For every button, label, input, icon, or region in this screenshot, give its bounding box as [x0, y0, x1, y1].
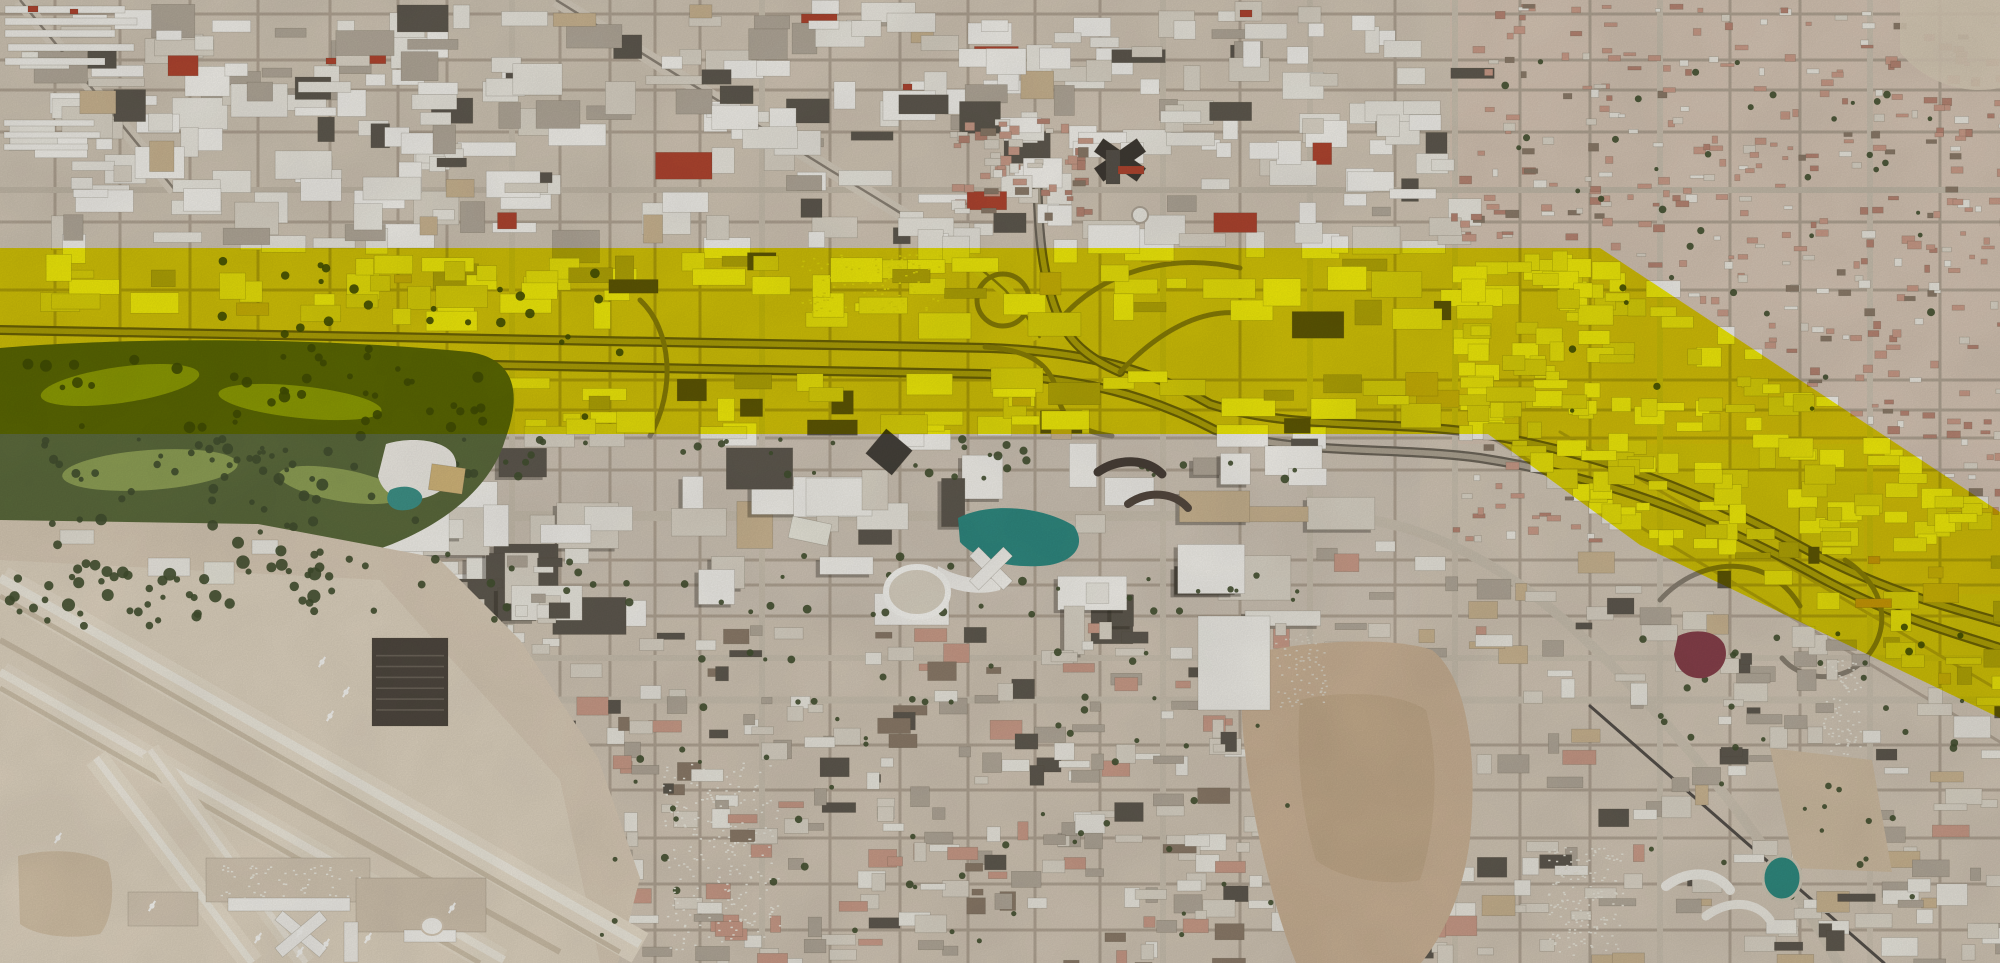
- image-grain: [0, 0, 2000, 963]
- satellite-map-view: Aerial satellite view of Las Vegas Strip…: [0, 0, 2000, 963]
- grain-fine: [0, 0, 2000, 963]
- satellite-image: Aerial satellite view of Las Vegas Strip…: [0, 0, 2000, 963]
